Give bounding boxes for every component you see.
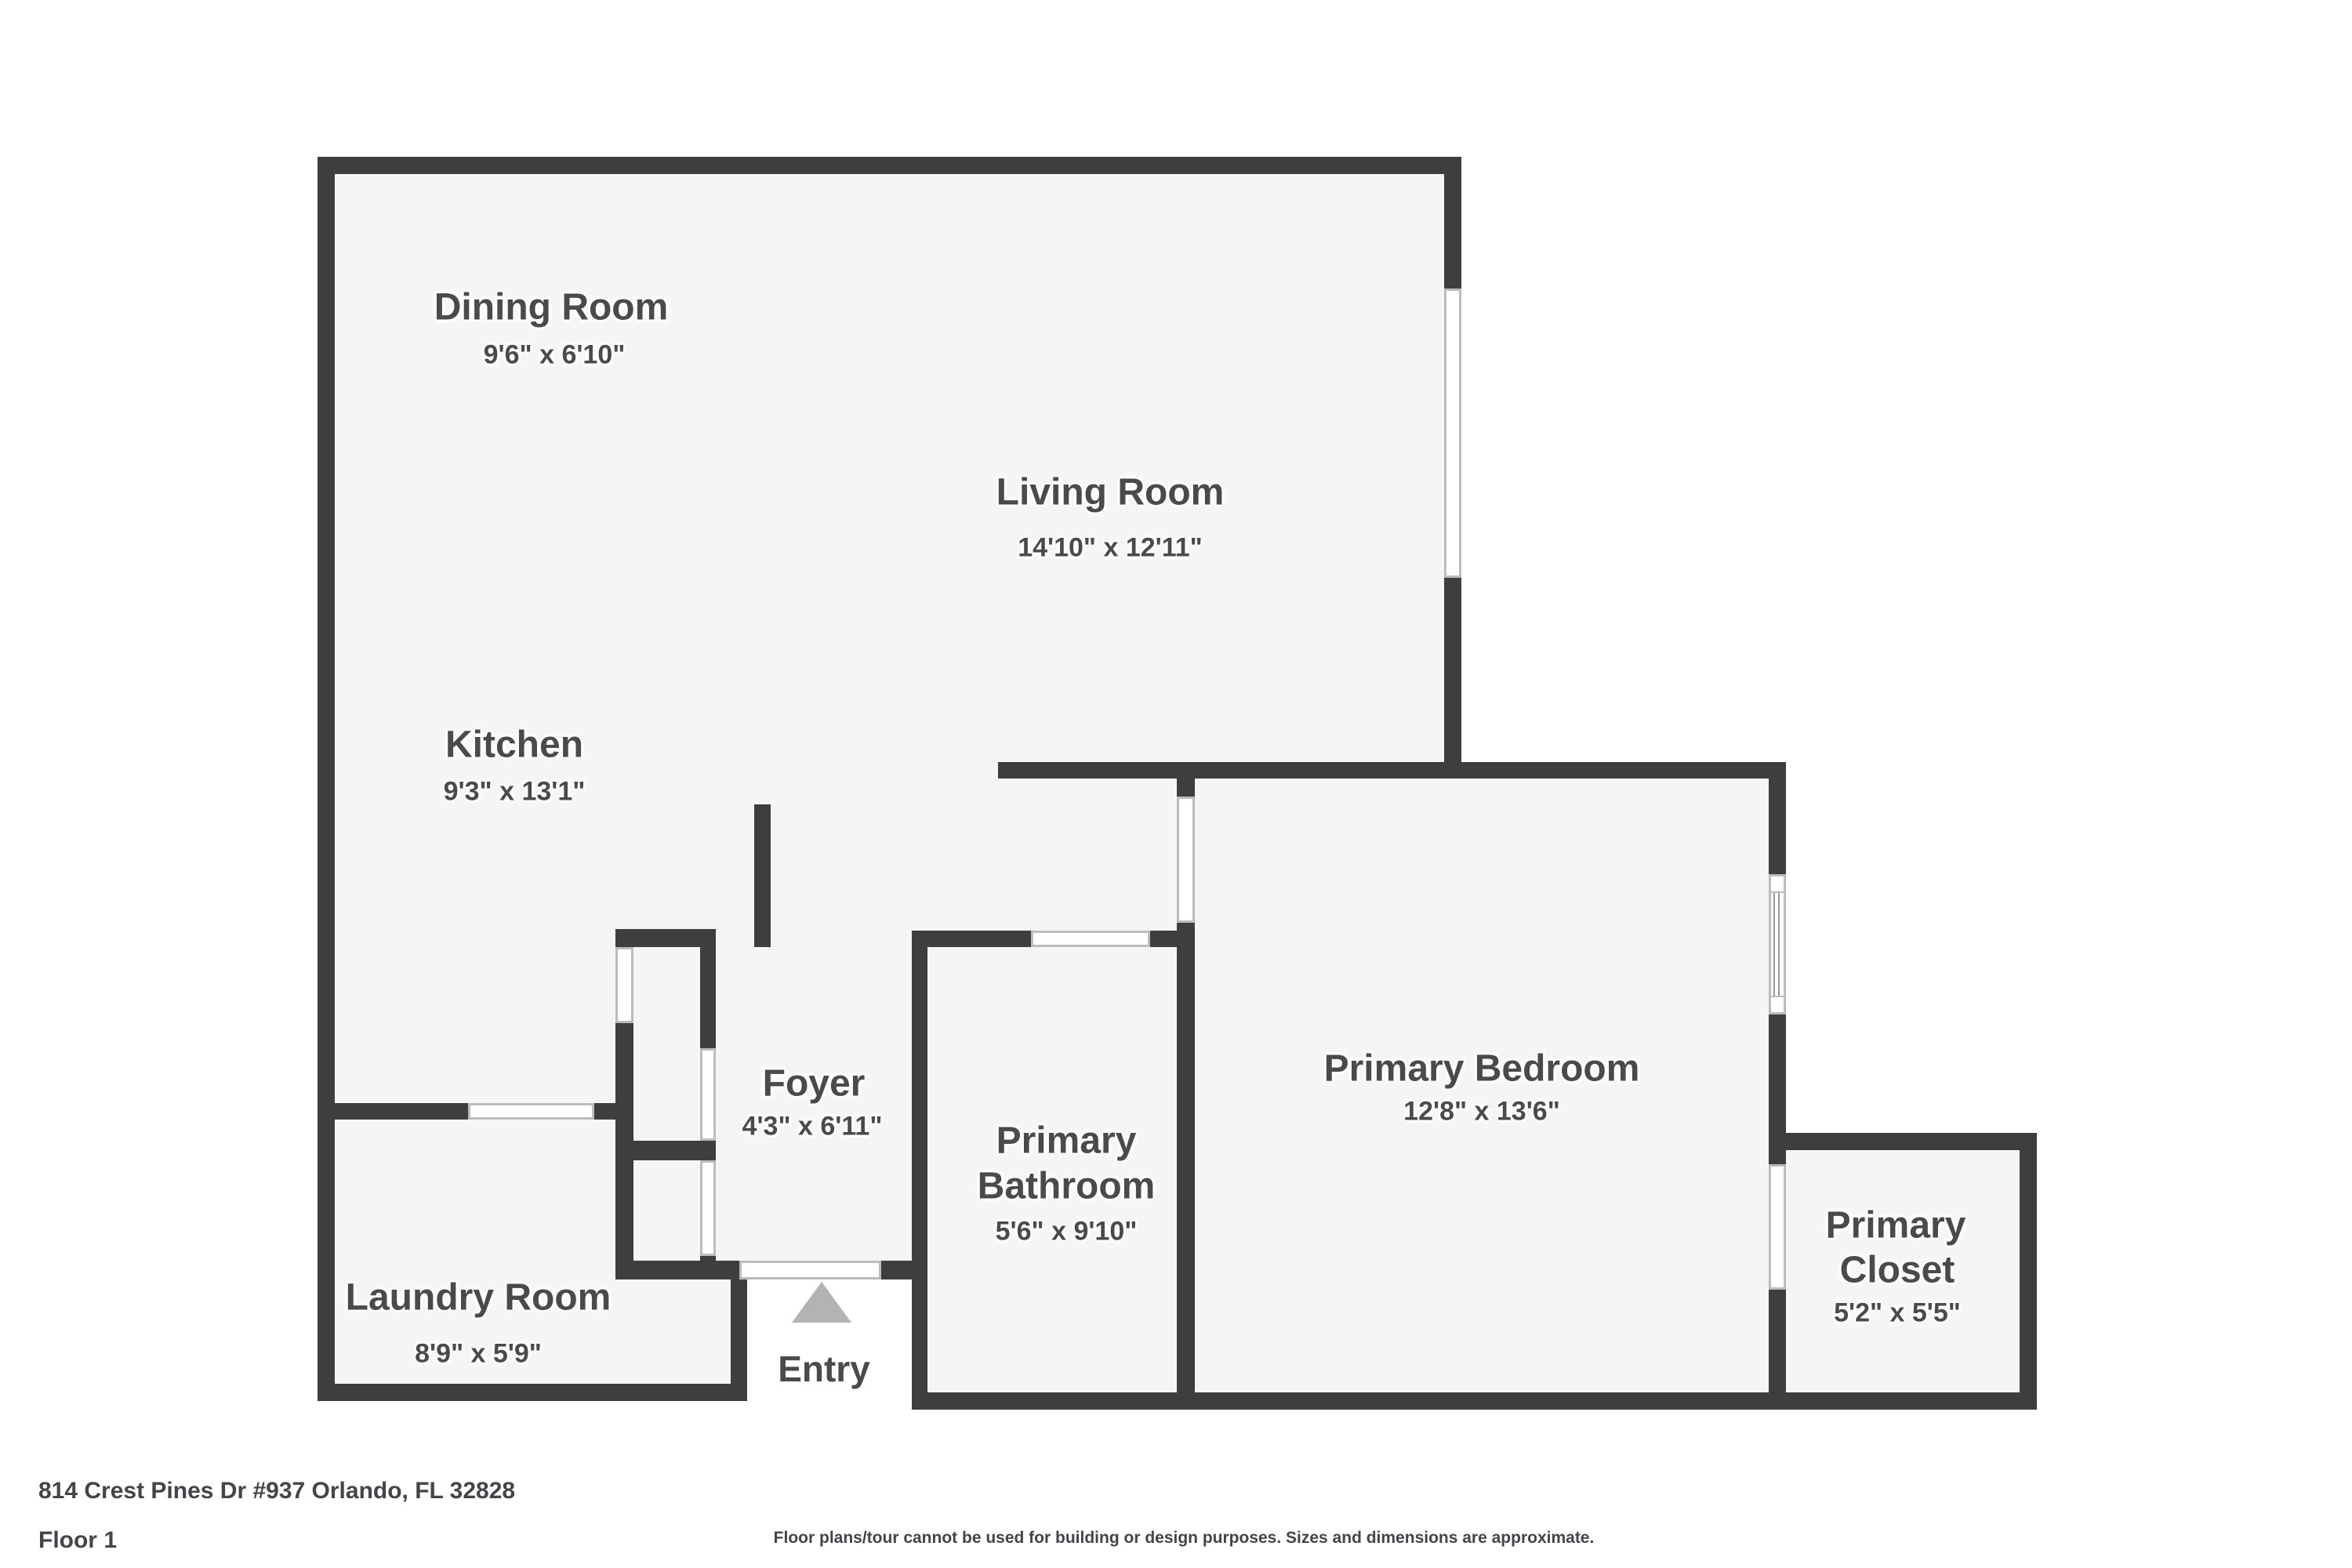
- bedroom-window-sill-bottom: [1771, 996, 1784, 997]
- entry-label: Entry: [778, 1348, 870, 1390]
- wall-outer-left: [318, 157, 335, 1401]
- living-room-dims: 14'10" x 12'11": [1018, 533, 1203, 564]
- laundry-door-opening: [468, 1103, 594, 1120]
- entry-door-opening: [739, 1261, 881, 1279]
- wall-closet-right: [2020, 1133, 2037, 1410]
- hall-closet-door-foyer-lower: [700, 1160, 716, 1256]
- footer-floor-number: Floor 1: [38, 1527, 117, 1554]
- wall-kitchen-stub: [754, 804, 771, 947]
- bedroom-window-pane-line: [1773, 893, 1775, 996]
- primary-bathroom-label-line1: Primary: [996, 1120, 1137, 1163]
- footer-address: 814 Crest Pines Dr #937 Orlando, FL 3282…: [38, 1478, 515, 1504]
- dining-room-label: Dining Room: [434, 286, 669, 329]
- wall-hall-closet-middle: [615, 1141, 716, 1160]
- primary-closet-label-line1: Primary: [1826, 1204, 1966, 1247]
- wall-laundry-bottom: [318, 1384, 747, 1401]
- wall-bedroom-right: [1769, 762, 1786, 1410]
- wall-bathroom-left: [912, 931, 927, 1410]
- bedroom-window-pane-line: [1778, 893, 1780, 996]
- closet-door-opening: [1769, 1164, 1786, 1290]
- wall-bedroom-top: [998, 762, 1786, 779]
- hall-closet-door-kitchen-side: [615, 947, 633, 1023]
- entry-arrow-icon: [792, 1282, 851, 1323]
- kitchen-dims: 9'3" x 13'1": [444, 777, 586, 808]
- hall-closet-door-foyer-upper: [700, 1048, 716, 1141]
- bathroom-door-opening: [1031, 931, 1150, 947]
- bedroom-door-opening: [1177, 797, 1195, 923]
- wall-outer-top: [318, 157, 1461, 174]
- footer-disclaimer: Floor plans/tour cannot be used for buil…: [774, 1529, 1595, 1548]
- kitchen-label: Kitchen: [445, 724, 583, 767]
- primary-bathroom-dims: 5'6" x 9'10": [996, 1217, 1138, 1247]
- primary-bedroom-label: Primary Bedroom: [1324, 1047, 1640, 1091]
- primary-bathroom-label-line2: Bathroom: [978, 1165, 1156, 1208]
- wall-closet-top: [1769, 1133, 2037, 1150]
- primary-closet-dims: 5'2" x 5'5": [1834, 1298, 1961, 1329]
- primary-bedroom-dims: 12'8" x 13'6": [1403, 1097, 1560, 1127]
- laundry-room-dims: 8'9" x 5'9": [415, 1339, 542, 1370]
- laundry-room-label: Laundry Room: [346, 1276, 612, 1319]
- wall-bottom-main: [912, 1392, 2037, 1410]
- living-room-label: Living Room: [996, 471, 1225, 514]
- foyer-dims: 4'3" x 6'11": [742, 1112, 883, 1142]
- wall-hall-closet-top: [615, 929, 716, 947]
- dining-room-dims: 9'6" x 6'10": [484, 340, 626, 371]
- floor-plan-canvas: Dining Room 9'6" x 6'10" Living Room 14'…: [0, 0, 2352, 1568]
- wall-laundry-right: [731, 1261, 747, 1401]
- foyer-label: Foyer: [763, 1062, 866, 1105]
- primary-closet-label-line2: Closet: [1840, 1249, 1955, 1292]
- floor-main-living-area: [335, 174, 1444, 762]
- living-room-window: [1444, 289, 1461, 578]
- bedroom-window: [1769, 874, 1786, 1014]
